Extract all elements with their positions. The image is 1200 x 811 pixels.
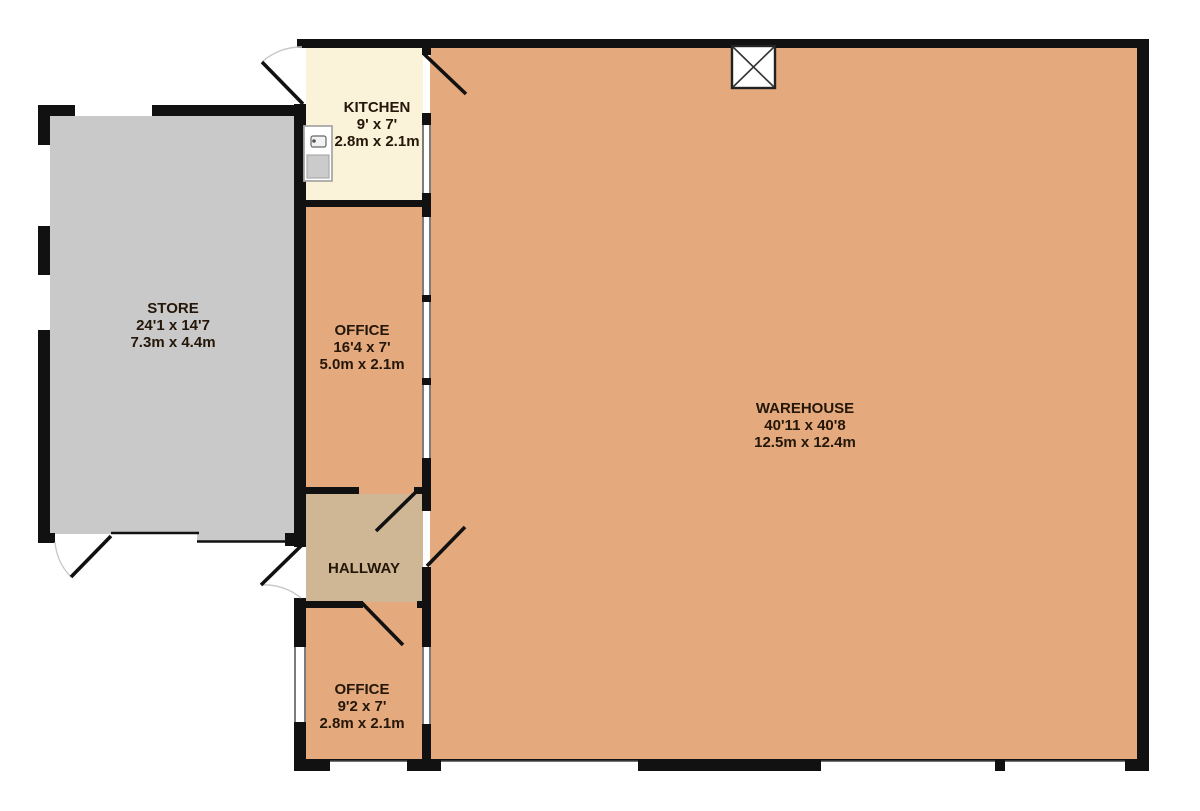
svg-text:7.3m x 4.4m: 7.3m x 4.4m <box>130 334 215 351</box>
svg-text:9' x 7': 9' x 7' <box>357 116 398 133</box>
svg-text:12.5m x 12.4m: 12.5m x 12.4m <box>754 434 856 451</box>
svg-text:KITCHEN: KITCHEN <box>344 99 411 116</box>
svg-text:9'2 x 7': 9'2 x 7' <box>338 698 387 715</box>
svg-text:16'4 x 7': 16'4 x 7' <box>333 339 390 356</box>
svg-text:WAREHOUSE: WAREHOUSE <box>756 400 854 417</box>
svg-text:5.0m x 2.1m: 5.0m x 2.1m <box>319 356 404 373</box>
svg-text:OFFICE: OFFICE <box>335 322 390 339</box>
svg-text:2.8m x 2.1m: 2.8m x 2.1m <box>334 133 419 150</box>
svg-text:2.8m x 2.1m: 2.8m x 2.1m <box>319 715 404 732</box>
svg-text:24'1 x 14'7: 24'1 x 14'7 <box>136 317 210 334</box>
svg-text:OFFICE: OFFICE <box>335 681 390 698</box>
svg-text:STORE: STORE <box>147 300 198 317</box>
svg-text:40'11 x 40'8: 40'11 x 40'8 <box>764 417 845 434</box>
svg-text:HALLWAY: HALLWAY <box>328 560 400 577</box>
